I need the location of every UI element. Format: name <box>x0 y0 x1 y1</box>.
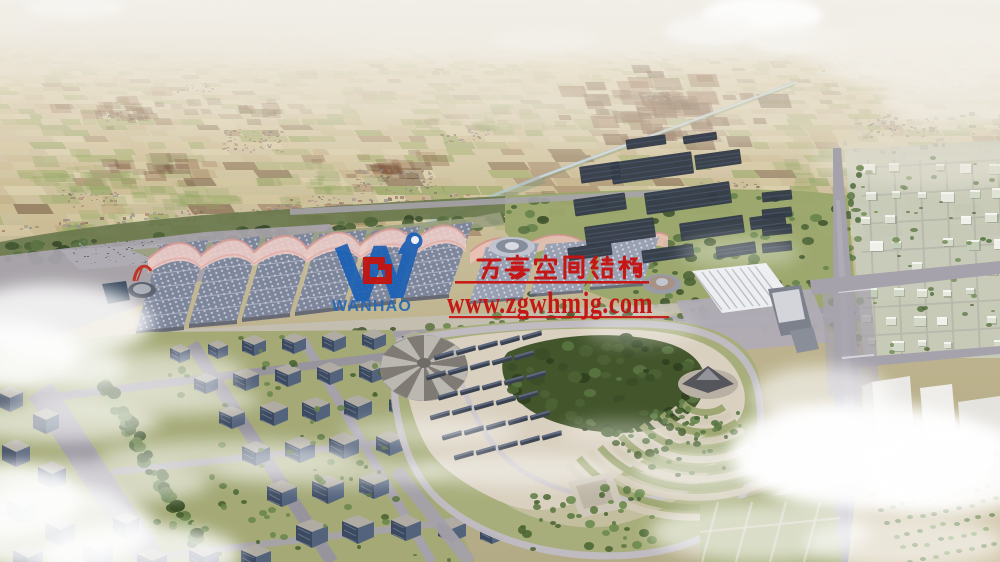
svg-text:www.zgwhmjg.com: www.zgwhmjg.com <box>447 286 653 321</box>
svg-text:WANHAO: WANHAO <box>332 298 412 315</box>
